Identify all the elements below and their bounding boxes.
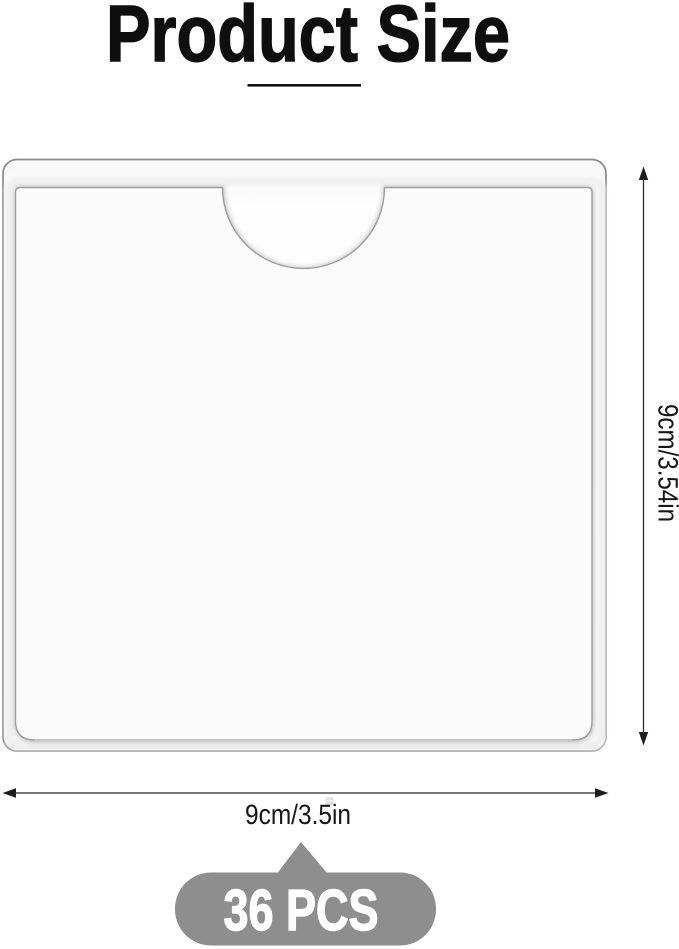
svg-text:36 PCS: 36 PCS [224,878,379,943]
svg-text:9cm/3.54in: 9cm/3.54in [653,404,679,522]
svg-text:9cm/3.5in: 9cm/3.5in [245,799,351,830]
svg-text:Product Size: Product Size [106,0,510,78]
